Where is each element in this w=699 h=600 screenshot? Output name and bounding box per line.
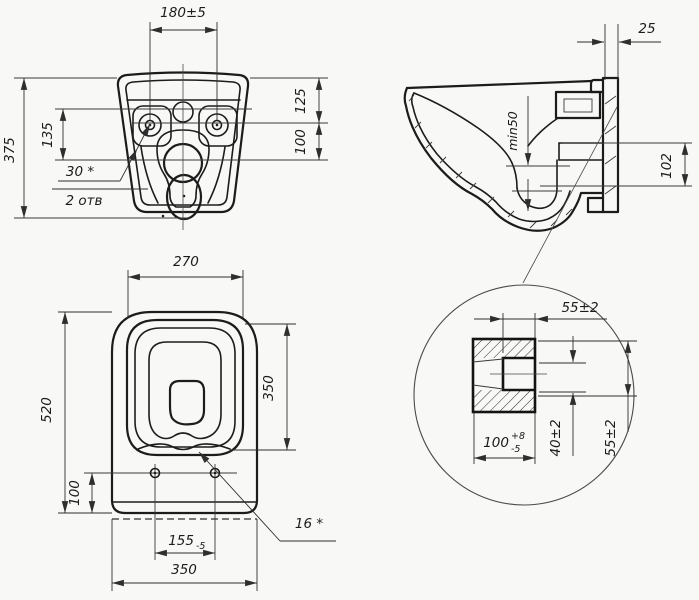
wall-plate xyxy=(603,78,618,212)
wall-plate-foot xyxy=(588,198,603,212)
dim-text-base: 100 xyxy=(483,435,509,451)
dim-text: 520 xyxy=(39,397,55,423)
note-30-text: 30 * xyxy=(66,164,94,180)
hatch-band-bottom xyxy=(473,390,535,412)
bore-taper-top xyxy=(473,359,503,362)
wall-plate-section-ticks xyxy=(605,96,616,194)
hatch-band-top xyxy=(473,339,535,358)
sump-outline xyxy=(170,381,204,424)
dim-overall-width: 350 xyxy=(112,519,257,591)
dim-text: 100 xyxy=(293,129,309,155)
mounting-hole-right-center xyxy=(216,124,219,127)
dim-outlet-axis: 102 xyxy=(540,143,692,186)
dim-top-to-hole-axis: 125 xyxy=(293,78,319,123)
dim-text: min50 xyxy=(505,111,520,151)
wing-curve-left xyxy=(141,147,158,203)
dim-seat-width: 270 xyxy=(128,254,243,318)
dim-text: 125 xyxy=(293,88,309,114)
rear-view: 180±5 375 135 125 100 30 * 2 отв xyxy=(2,5,328,230)
dim-hole-offset: 100 xyxy=(67,473,92,513)
seat-hole-right-center xyxy=(214,472,217,475)
note-2otv-text: 2 отв xyxy=(66,193,103,209)
dim-text: 100 xyxy=(67,480,83,506)
bore-taper-bottom xyxy=(473,385,503,389)
wall-plate-tab xyxy=(591,80,603,92)
note-16-text: 16 * xyxy=(295,516,323,532)
dim-text: 25 xyxy=(638,21,655,37)
bowl-funnel-right xyxy=(528,118,558,146)
dim-text: 55±2 xyxy=(603,419,619,456)
plan-view: 270 520 350 100 155 -5 xyxy=(39,254,336,591)
trap-weir xyxy=(517,160,557,208)
dim-text: 270 xyxy=(173,254,199,270)
seat-ring-middle xyxy=(135,328,235,447)
dim-wall-gap: 25 xyxy=(577,21,661,80)
side-view: min50 25 102 xyxy=(405,21,692,283)
dim-text: 40±2 xyxy=(548,419,564,456)
dim-left-height: 135 xyxy=(40,109,63,160)
leader-segment xyxy=(199,452,280,541)
mounting-boss-right xyxy=(199,106,237,146)
dim-text: 180±5 xyxy=(160,5,206,21)
dim-seat-length: 350 xyxy=(230,324,296,450)
flush-channel xyxy=(556,92,600,118)
detail-view: 55±2 100 +8 -5 40±2 55±2 xyxy=(414,285,637,505)
dim-bore: 100 +8 -5 xyxy=(474,413,535,464)
dim-text: 55±2 xyxy=(561,300,598,316)
flush-channel-inner xyxy=(564,99,592,112)
dim-text: 102 xyxy=(659,153,675,179)
dim-seat-hole-spacing: 155 -5 xyxy=(155,533,215,553)
dim-text: 375 xyxy=(2,137,18,163)
reference-dot xyxy=(162,215,165,218)
note-seat-holes: 16 * xyxy=(199,452,336,541)
drawing-canvas: 180±5 375 135 125 100 30 * 2 отв xyxy=(0,0,699,600)
seat-hole-left-center xyxy=(154,472,157,475)
dim-text-base: 155 xyxy=(168,533,194,549)
dim-text-tolerance: -5 xyxy=(196,541,205,552)
inner-shell xyxy=(412,93,570,222)
wing-curve-right xyxy=(208,147,225,203)
dim-text: 350 xyxy=(261,375,277,401)
dim-text: 350 xyxy=(171,562,197,578)
rim-top xyxy=(407,81,592,88)
dim-text: 135 xyxy=(40,122,56,148)
bowl-funnel-left xyxy=(414,93,517,188)
dim-text-upper: +8 xyxy=(511,431,525,442)
seat-ring-outer xyxy=(127,320,243,455)
dim-text-lower: -5 xyxy=(511,444,520,455)
dim-water-seal: min50 xyxy=(505,96,570,211)
note-holes: 30 * 2 отв xyxy=(52,124,150,209)
dim-hole-axis-to-drain: 100 xyxy=(293,123,319,160)
dim-overall-height: 375 xyxy=(2,78,24,218)
